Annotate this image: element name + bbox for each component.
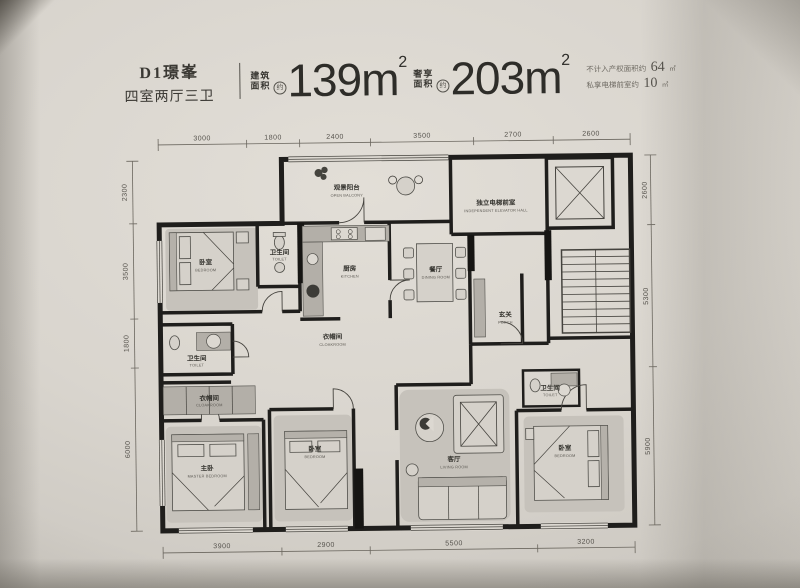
svg-text:卧室: 卧室 [558,443,572,452]
svg-text:PORCH: PORCH [498,321,513,325]
header-divider [239,63,240,99]
svg-text:客厅: 客厅 [446,454,461,463]
building-area-label-1: 建筑 [250,71,270,81]
dimension-ruler-bottom: 3900 2900 5500 3200 [163,538,635,559]
room-label-cloakroom-left: 衣帽间 CLOAKROOM [196,393,223,407]
room-label-balcony: 观景阳台 OPEN BALCONY [330,182,363,197]
svg-text:观景阳台: 观景阳台 [334,182,361,191]
dim-bottom-2: 2900 [317,542,335,549]
svg-text:TOILET: TOILET [543,393,558,397]
luxury-area-sup: 2 [561,52,570,69]
dim-top-2: 1800 [264,134,282,141]
svg-text:MASTER BEDROOM: MASTER BEDROOM [188,474,227,478]
room-label-toilet-2: 卫生间 TOILET [187,353,207,367]
dim-top-6: 2600 [582,131,600,138]
window-top-balcony [288,154,448,163]
svg-text:卫生间: 卫生间 [540,383,560,392]
dim-right-1: 2600 [642,181,649,199]
plan-header: D1璟峯 四室两厅三卫 建筑 面积 约 139m2 奢享 面积 约 203m2 … [105,48,746,110]
luxury-area-label-1: 奢享 [413,69,433,79]
stairs-icon [561,249,630,333]
dim-top-1: 3000 [193,135,211,142]
side-table-icon [415,413,443,441]
dim-right-2: 5300 [643,287,650,305]
svg-text:INDEPENDENT ELEVATOR HALL: INDEPENDENT ELEVATOR HALL [464,208,527,213]
svg-text:卫生间: 卫生间 [270,247,290,256]
approx-circle: 约 [436,79,449,92]
dimension-ruler-top: 3000 1800 2400 3500 2700 2600 [158,130,630,151]
bed-icon [526,425,609,500]
plant-icon [314,167,327,180]
room-label-porch: 玄关 PORCH [498,310,513,325]
window-left-master [158,440,166,506]
shoe-cabinet [474,279,486,337]
toilet2-door-arc [233,341,249,357]
washbasin-icon [275,262,285,272]
svg-text:CLOAKROOM: CLOAKROOM [196,403,223,407]
plan-title-block: D1璟峯 四室两厅三卫 [105,58,234,107]
dim-left-1: 2300 [122,184,129,202]
bed-icon [285,431,348,510]
balcony-door-arc [339,197,364,222]
svg-text:卧室: 卧室 [199,257,213,266]
plan-name: D1璟峯 [105,58,233,84]
building-area-value: 139m [287,53,399,106]
svg-text:TOILET: TOILET [190,363,205,367]
svg-text:TOILET: TOILET [272,257,287,261]
svg-text:BEDROOM: BEDROOM [195,268,216,272]
washbasin-icon [206,334,220,348]
dim-left-2: 3500 [123,263,130,281]
svg-text:玄关: 玄关 [499,310,513,319]
fridge-icon [365,227,385,240]
svg-text:卧室: 卧室 [308,444,322,453]
room-label-toilet-1: 卫生间 TOILET [270,247,290,261]
floor-plan-photo: D1璟峯 四室两厅三卫 建筑 面积 约 139m2 奢享 面积 约 203m2 … [0,0,800,588]
toilet-icon [169,332,230,351]
luxury-area-value: 203m [450,51,562,104]
svg-text:BEDROOM: BEDROOM [554,454,575,458]
dimension-ruler-left: 2300 3500 1800 6000 [121,161,143,531]
building-area-sup: 2 [398,54,407,71]
sink-icon [307,253,318,264]
dim-left-4: 6000 [125,440,132,458]
armchair-icon [453,395,504,454]
room-label-kitchen: 厨房 KITCHEN [341,264,359,279]
window-bottom-bedroom2 [286,525,348,533]
approx-circle: 约 [273,81,286,94]
svg-text:KITCHEN: KITCHEN [341,275,359,279]
svg-text:卫生间: 卫生间 [187,353,207,362]
dim-bottom-3: 5500 [445,540,463,547]
dim-top-5: 2700 [504,131,522,138]
note-private-elevator: 私享电梯前室约 10 ㎡ [586,76,676,93]
building-area-label-2: 面积 [250,81,270,91]
svg-text:LIVING ROOM: LIVING ROOM [440,465,468,469]
dim-bottom-4: 3200 [577,539,595,546]
bedroom2-door-arc [333,389,353,409]
dim-left-3: 1800 [123,335,130,353]
svg-text:CLOAKROOM: CLOAKROOM [319,343,346,347]
floor-plan-page: D1璟峯 四室两厅三卫 建筑 面积 约 139m2 奢享 面积 约 203m2 … [0,0,800,588]
svg-text:厨房: 厨房 [343,264,357,273]
svg-text:OPEN BALCONY: OPEN BALCONY [331,193,364,197]
bedroom1-door-arc [262,291,282,311]
svg-text:BEDROOM: BEDROOM [304,455,325,459]
window-bottom-bedroom3 [541,522,608,530]
window-left-bedroom1 [156,241,164,303]
svg-text:餐厅: 餐厅 [428,264,443,273]
svg-text:独立电梯前室: 独立电梯前室 [476,198,516,207]
luxury-area-block: 奢享 面积 约 203m2 [413,50,571,106]
room-label-elevator-hall: 独立电梯前室 INDEPENDENT ELEVATOR HALL [464,197,528,213]
room-label-toilet-3: 卫生间 TOILET [540,383,560,397]
area-notes: 不计入产权面积约 64 ㎡ 私享电梯前室约 10 ㎡ [586,60,676,93]
room-label-cloakroom-center: 衣帽间 CLOAKROOM [319,332,346,347]
window-bottom-master [179,526,253,534]
dimension-ruler-right: 2600 5300 5900 [641,155,661,525]
svg-text:衣帽间: 衣帽间 [199,393,219,402]
stool-icon [406,464,418,476]
entry-door-arc [500,322,522,344]
stove-icon [331,228,357,240]
dim-bottom-1: 3900 [213,543,231,550]
svg-text:DINING ROOM: DINING ROOM [422,275,450,279]
plan-layout-summary: 四室两厅三卫 [105,85,233,107]
elevator-shaft [546,157,613,228]
dim-right-3: 5900 [645,437,652,455]
svg-text:主卧: 主卧 [201,463,215,472]
window-bottom-living [411,523,503,531]
luxury-area-label-2: 面积 [413,79,433,89]
svg-text:衣帽间: 衣帽间 [323,332,343,341]
building-area-block: 建筑 面积 约 139m2 [250,52,408,108]
dim-top-3: 2400 [326,134,344,141]
round-table-icon [389,176,423,195]
dim-top-4: 3500 [413,133,431,140]
note-non-property-area: 不计入产权面积约 64 ㎡ [586,60,676,77]
